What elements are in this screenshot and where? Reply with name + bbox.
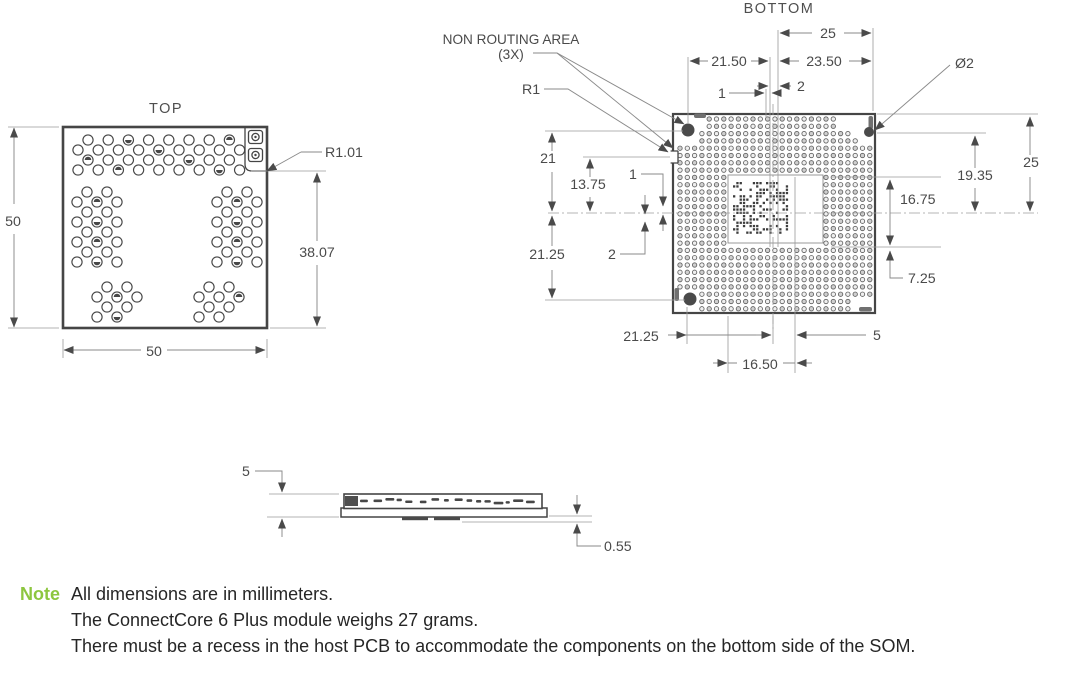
dim-bottom-right-19-35: 19.35 <box>957 168 993 184</box>
label-hole-diameter: Ø2 <box>955 56 974 72</box>
edge-slot <box>694 114 706 119</box>
dim-bottom-bottom-21-25: 21.25 <box>623 329 659 345</box>
dim-bottom-left-21-25: 21.25 <box>529 247 565 263</box>
leader-arrow <box>544 89 668 152</box>
leader-arrow <box>875 65 950 130</box>
note-lines: All dimensions are in millimeters. The C… <box>71 581 915 659</box>
dim-top-corner-fillet: R1.01 <box>325 145 363 161</box>
edge-notch-fill <box>671 151 678 163</box>
side-view-bottom-connector <box>434 517 460 520</box>
dim-bottom-right-16-75: 16.75 <box>900 192 936 208</box>
note-label: Note <box>20 581 60 659</box>
dim-bottom-left-gap-2: 2 <box>608 247 616 263</box>
dim-bottom-left-13-75: 13.75 <box>570 177 606 193</box>
corner-component-dot <box>254 136 256 138</box>
top-view-title: TOP <box>149 101 183 117</box>
dim-side-standoff: 0.55 <box>604 539 632 555</box>
edge-slot <box>859 307 872 312</box>
leader-arrow <box>267 152 301 171</box>
bga-clear-rect <box>728 175 823 243</box>
note: Note All dimensions are in millimeters. … <box>20 581 915 659</box>
dim-bottom-top-23-50: 23.50 <box>806 54 842 70</box>
dim-side-thickness: 5 <box>242 464 250 480</box>
mounting-hole <box>682 124 695 137</box>
dim-bottom-bottom-5: 5 <box>873 328 881 344</box>
label-non-routing-qty: (3X) <box>498 47 524 62</box>
note-line-2: The ConnectCore 6 Plus module weighs 27 … <box>71 607 915 633</box>
corner-component-dot <box>254 154 256 156</box>
note-line-3: There must be a recess in the host PCB t… <box>71 633 915 659</box>
note-line-1: All dimensions are in millimeters. <box>71 581 915 607</box>
bottom-view-title: BOTTOM <box>744 1 815 17</box>
label-edge-fillet: R1 <box>522 82 540 98</box>
mounting-hole <box>864 127 874 137</box>
side-view-edge-component <box>345 496 358 506</box>
dim-bottom-top-21-50: 21.50 <box>711 54 747 70</box>
side-view-baseplate <box>341 508 547 517</box>
dim-bottom-top-gap-1: 1 <box>718 86 726 102</box>
dim-bottom-right-25: 25 <box>1023 155 1039 171</box>
label-non-routing-area: NON ROUTING AREA <box>443 32 581 47</box>
dim-top-step-height: 38.07 <box>299 245 335 261</box>
dim-bottom-left-21: 21 <box>540 151 556 167</box>
mechanical-drawing-page: TOP 50 50 R1.01 38.07 BOTTOM NON ROUTING… <box>0 0 1080 673</box>
drawing-canvas: TOP 50 50 R1.01 38.07 BOTTOM NON ROUTING… <box>0 0 1080 575</box>
dim-bottom-right-7-25: 7.25 <box>908 271 936 287</box>
edge-slot <box>675 288 680 301</box>
leader-arrow <box>557 53 673 148</box>
leader-arrow <box>533 53 684 124</box>
side-view-bottom-connector <box>402 517 428 520</box>
dim-top-height: 50 <box>5 214 21 230</box>
dim-top-width: 50 <box>146 344 162 360</box>
dim-bottom-bottom-16-50: 16.50 <box>742 357 778 373</box>
mounting-hole <box>684 293 697 306</box>
dim-bottom-top-gap-2: 2 <box>797 79 805 95</box>
dim-bottom-left-gap-1: 1 <box>629 167 637 183</box>
dim-bottom-top-25: 25 <box>820 26 836 42</box>
